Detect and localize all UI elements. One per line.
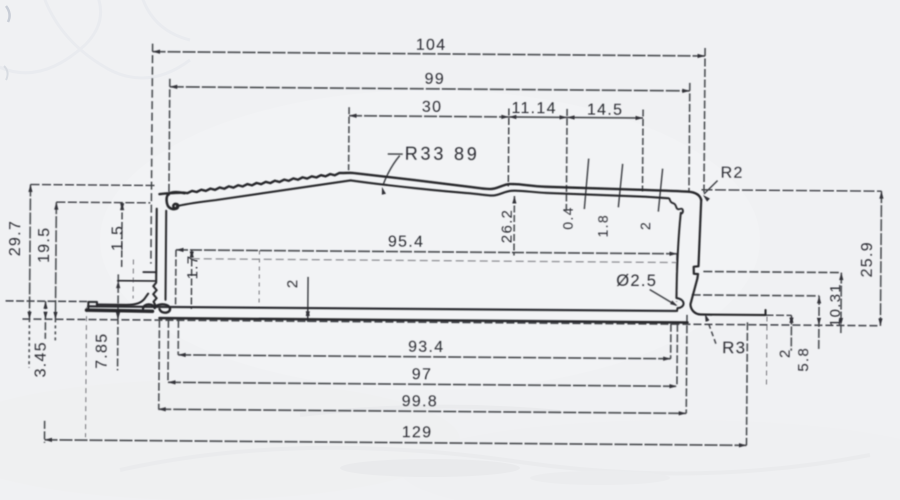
svg-text:30: 30 [422,99,443,116]
svg-text:11.14: 11.14 [511,100,556,117]
svg-text:19.5: 19.5 [36,227,53,263]
svg-text:R3: R3 [722,338,746,357]
svg-text:29.7: 29.7 [7,220,24,256]
svg-text:129: 129 [402,424,433,441]
svg-text:25.9: 25.9 [859,241,876,277]
svg-text:1.8: 1.8 [595,214,611,237]
svg-text:10.31: 10.31 [827,283,844,327]
svg-text:3.45: 3.45 [32,341,49,377]
svg-text:104: 104 [416,37,447,54]
svg-text:99.8: 99.8 [402,393,438,410]
svg-text:1.5: 1.5 [109,225,126,251]
svg-text:93.4: 93.4 [408,339,444,356]
svg-text:R33 89: R33 89 [405,144,480,165]
svg-text:5.8: 5.8 [795,347,812,372]
svg-text:99: 99 [425,71,446,88]
svg-text:26.2: 26.2 [499,209,516,244]
svg-text:2: 2 [284,278,301,288]
svg-text:95.4: 95.4 [388,234,424,251]
svg-text:2: 2 [637,221,653,230]
svg-text:7.85: 7.85 [94,333,111,369]
svg-text:2: 2 [777,348,794,358]
svg-text:0.4: 0.4 [560,206,576,229]
svg-text:14.5: 14.5 [587,102,623,119]
svg-text:R2: R2 [721,165,744,182]
svg-text:97: 97 [412,366,433,383]
svg-text:Ø2.5: Ø2.5 [616,272,657,290]
